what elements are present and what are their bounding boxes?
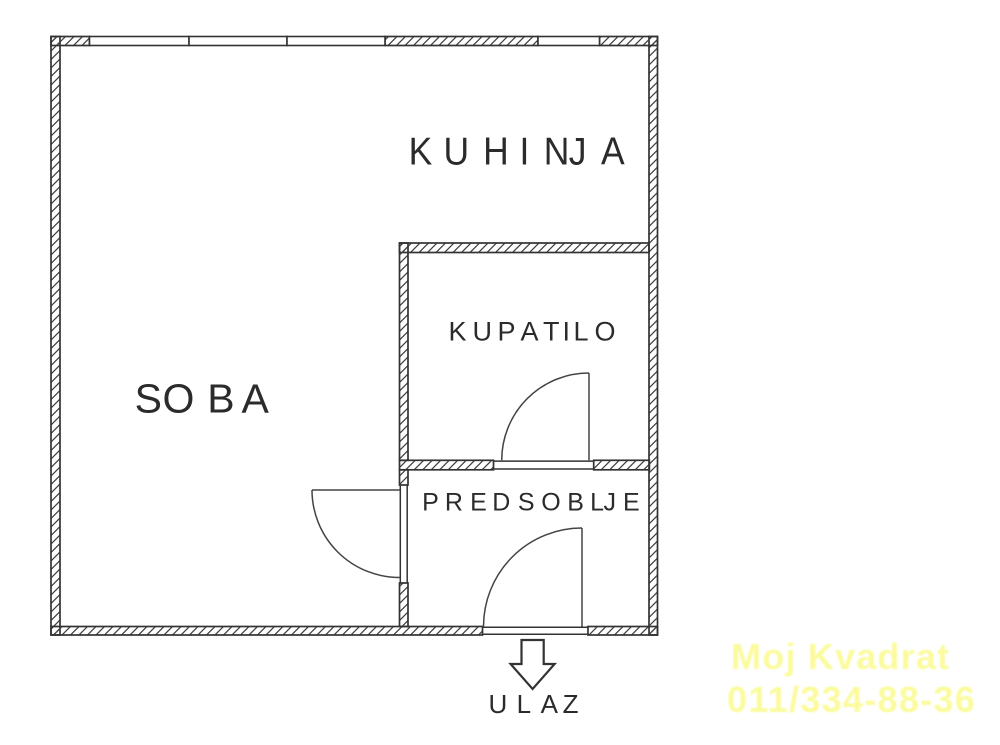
svg-text:Moj Kvadrat: Moj Kvadrat (731, 636, 950, 677)
svg-text:011/334-88-36: 011/334-88-36 (727, 679, 976, 720)
svg-text:PREDSOBLJE: PREDSOBLJE (422, 489, 640, 517)
